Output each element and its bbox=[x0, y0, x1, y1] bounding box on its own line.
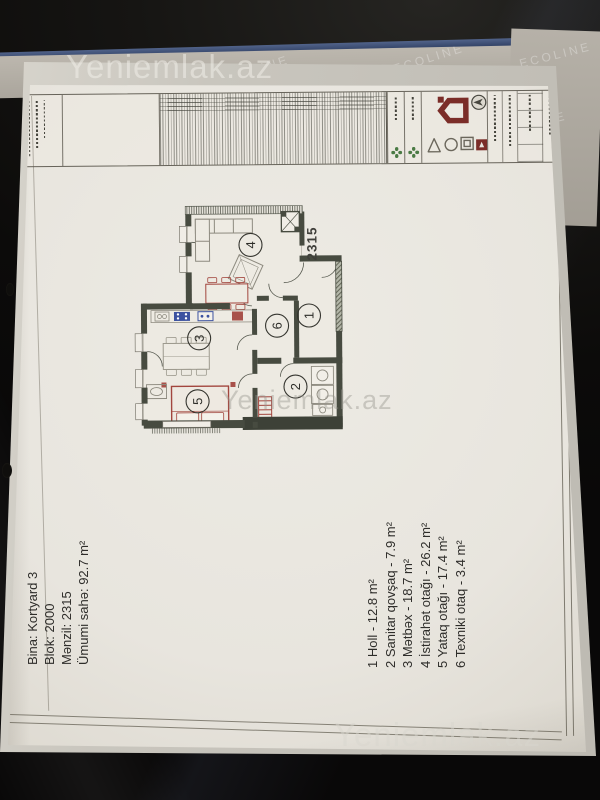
sheet-frame-bottom bbox=[10, 714, 562, 740]
binder-hole bbox=[6, 283, 14, 296]
apartment-info: Bina: Kortyard 3 Blok: 2000 Mənzil: 2315… bbox=[24, 543, 92, 665]
room-number-3: 3 bbox=[192, 335, 207, 342]
room-number-4: 4 bbox=[243, 241, 258, 248]
certification-icons bbox=[428, 137, 473, 151]
logo-panel bbox=[421, 91, 488, 163]
floor-plan: 4 3 5 6 1 2 2315 bbox=[119, 189, 356, 446]
room-number-1: 1 bbox=[302, 312, 317, 319]
brand-column bbox=[404, 92, 422, 163]
shaft bbox=[281, 212, 299, 232]
clover-logo-icon bbox=[408, 147, 419, 158]
room-number-2: 2 bbox=[288, 383, 303, 390]
clover-logo-icon bbox=[391, 147, 402, 158]
info-block: Blok: 2000 bbox=[41, 543, 58, 665]
hatched-wall bbox=[336, 261, 342, 331]
legend-item: 1 Holl - 12.8 m² bbox=[364, 498, 382, 668]
legend-item: 5 Yataq otağı - 17.4 m² bbox=[434, 498, 452, 668]
legend-item: 2 Sanitar qovşaq - 7.9 m² bbox=[382, 498, 400, 668]
brand-column bbox=[387, 92, 405, 163]
balcony-rail-bottom bbox=[151, 428, 221, 433]
appliance bbox=[198, 312, 213, 321]
title-table bbox=[487, 91, 558, 163]
cooktop bbox=[174, 312, 190, 321]
title-block-strip bbox=[16, 90, 561, 168]
bath-fixtures bbox=[311, 366, 333, 415]
title-schedule-grid bbox=[159, 92, 388, 165]
developer-logo-icon bbox=[438, 96, 466, 120]
info-apartment: Mənzil: 2315 bbox=[58, 543, 75, 665]
legend-item: 4 İstirahət otağı - 26.2 m² bbox=[417, 498, 435, 668]
room-legend: 1 Holl - 12.8 m² 2 Sanitar qovşaq - 7.9 … bbox=[364, 498, 469, 668]
apartment-number-label: 2315 bbox=[304, 226, 319, 260]
info-total-area: Ümumi sahə: 92.7 m² bbox=[75, 543, 92, 665]
room-number-6: 6 bbox=[270, 322, 285, 329]
photo-scene: ECOLINE ECOLINE ECOLINE ECOLINE ECOLINE bbox=[0, 0, 600, 800]
legend-item: 6 Texniki otaq - 3.4 m² bbox=[452, 498, 470, 668]
small-red-logo-icon bbox=[476, 139, 487, 150]
info-building: Bina: Kortyard 3 bbox=[24, 543, 41, 665]
binder-hole bbox=[2, 463, 12, 478]
room-number-5: 5 bbox=[190, 398, 205, 405]
legend-item: 3 Mətbəx - 18.7 m² bbox=[399, 498, 417, 668]
compass-icon bbox=[472, 95, 486, 109]
kitchen-counter bbox=[151, 310, 255, 323]
title-spacer-cell bbox=[63, 94, 160, 166]
appliance-red bbox=[232, 311, 243, 320]
drawing-sheet: 4 3 5 6 1 2 2315 Bina: Kortyard 3 Blok: … bbox=[0, 0, 600, 800]
